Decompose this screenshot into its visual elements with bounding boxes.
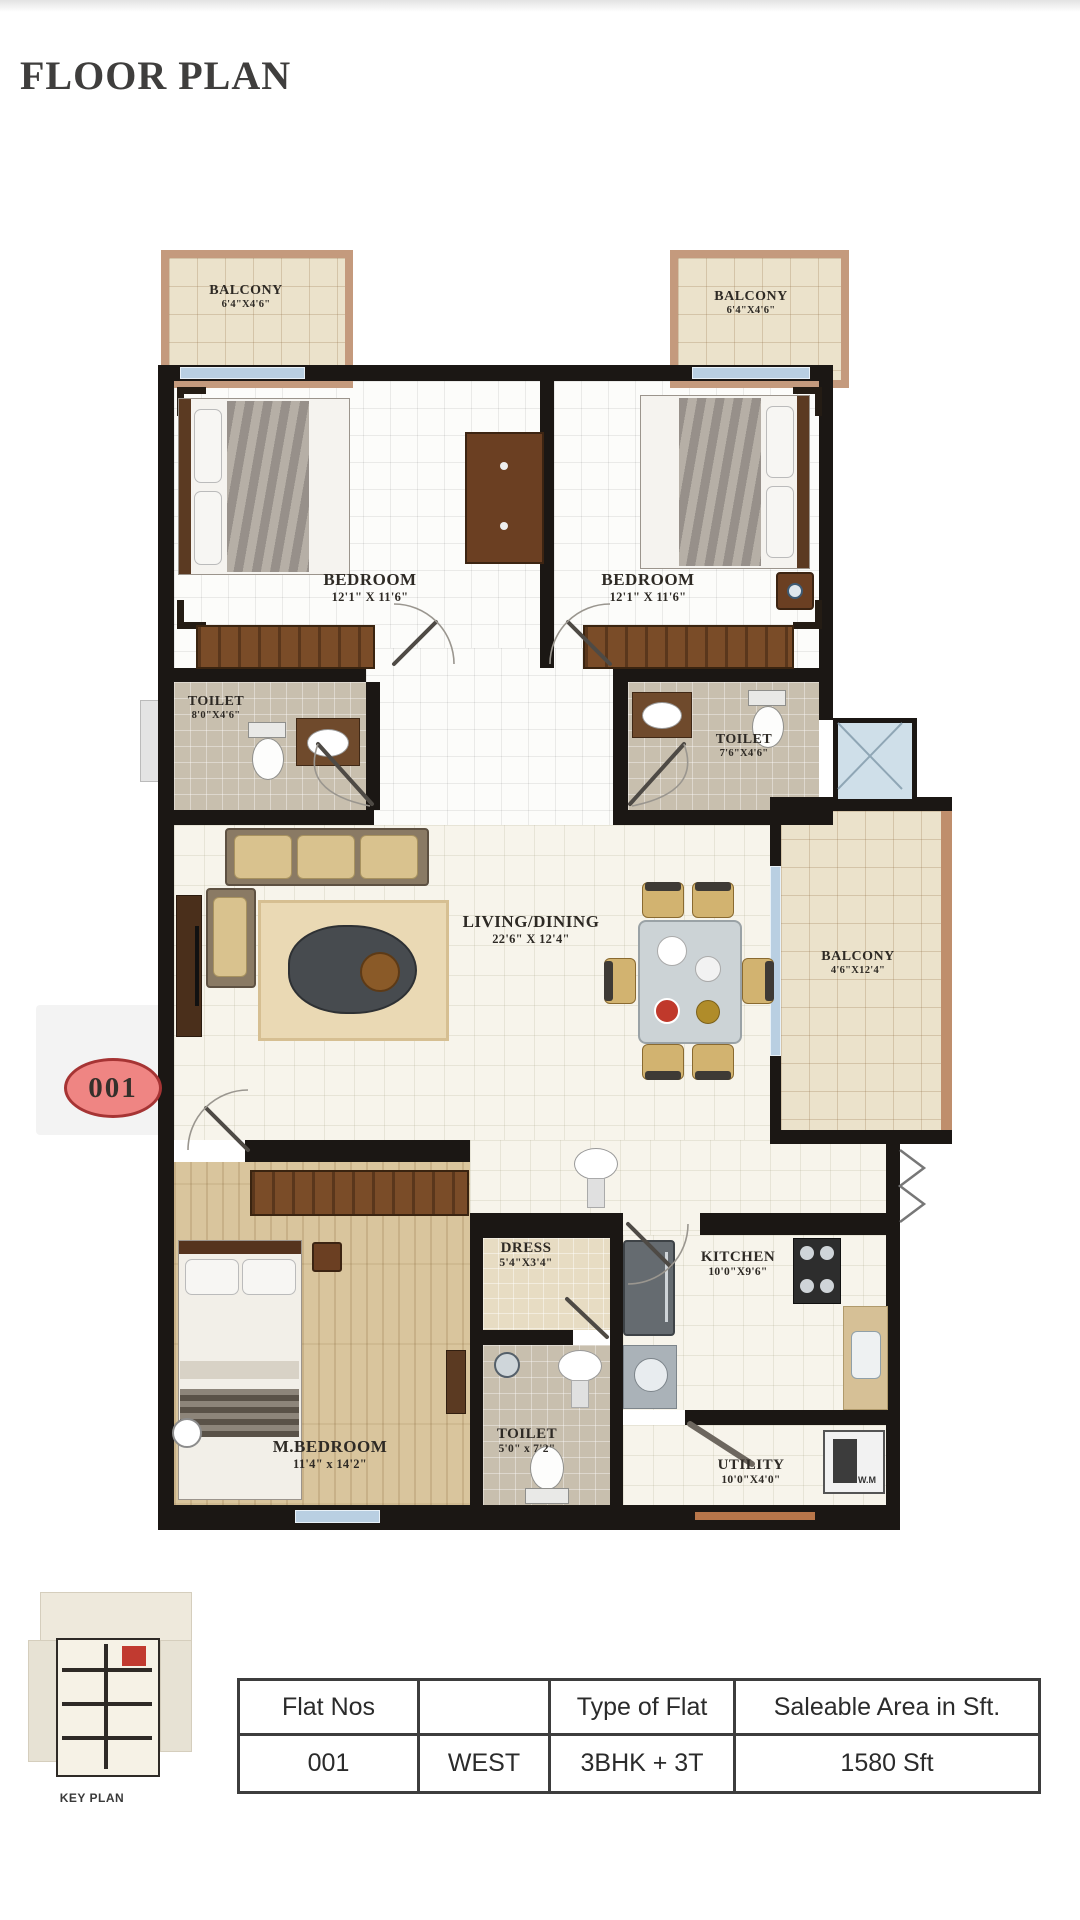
chair-icon [692, 882, 734, 918]
washing-machine-label: W.M [858, 1475, 876, 1485]
basin-bowl [642, 702, 682, 729]
room-dims: 6'4"X4'6" [209, 299, 283, 310]
room-label-dress: DRESS 5'4"X3'4" [499, 1240, 552, 1269]
room-label-utility: UTILITY 10'0"X4'0" [718, 1457, 785, 1486]
wall [700, 1213, 886, 1235]
wall [613, 668, 819, 682]
unit-number-badge: 001 [64, 1058, 162, 1118]
table-header-facing [420, 1681, 551, 1736]
hall-floor [366, 648, 613, 825]
balcony-floor [169, 258, 345, 380]
pillow [185, 1259, 239, 1295]
wall [158, 365, 174, 1530]
room-name: BALCONY [209, 283, 283, 299]
washbasin-icon [572, 1148, 618, 1208]
fridge-handle [665, 1252, 668, 1322]
knob [500, 522, 508, 530]
pillow [194, 491, 222, 565]
duvet [679, 398, 761, 566]
room-name: M.BEDROOM [273, 1437, 388, 1457]
wall [613, 810, 833, 825]
room-name: TOILET [497, 1426, 557, 1443]
table-header-type: Type of Flat [551, 1681, 736, 1736]
french-window-icon [900, 1150, 924, 1222]
basin-bowl [574, 1148, 618, 1180]
fridge-icon [623, 1240, 675, 1336]
dining-table-icon [638, 920, 742, 1044]
room-name: BALCONY [714, 289, 788, 305]
wall [470, 1213, 483, 1505]
room-label-balcony-top-left: BALCONY 6'4"X4'6" [209, 283, 283, 310]
bowl [360, 952, 400, 992]
toilet-bowl [252, 738, 284, 780]
basin-bowl [307, 729, 349, 757]
balcony-right-frame [941, 811, 952, 1130]
wall [610, 1238, 623, 1505]
wardrobe-icon [250, 1170, 469, 1216]
keyplan-wing [40, 1592, 192, 1642]
balcony-door-right [692, 367, 810, 379]
wall [158, 810, 374, 825]
kitchen-counter [843, 1306, 888, 1410]
bottom-window [295, 1510, 380, 1523]
room-label-bedroom-right: BEDROOM 12'1" X 11'6" [601, 570, 694, 605]
blanket-fold [180, 1361, 299, 1379]
floor-plan-page: FLOOR PLAN [0, 0, 1080, 1920]
room-name: TOILET [188, 694, 244, 710]
pillow [766, 486, 794, 558]
washbasin-icon [632, 692, 692, 738]
chair-icon [642, 882, 684, 918]
cushion [234, 835, 292, 879]
room-label-bedroom-left: BEDROOM 12'1" X 11'6" [323, 570, 416, 605]
toilet-window [140, 700, 160, 782]
room-name: KITCHEN [701, 1249, 775, 1266]
room-name: BALCONY [821, 949, 895, 965]
pillow [194, 409, 222, 483]
room-dims: 12'1" X 11'6" [323, 590, 416, 605]
room-dims: 5'0" x 7'2" [497, 1443, 557, 1455]
table-cell-type: 3BHK + 3T [551, 1736, 736, 1791]
table-cell-area: 1580 Sft [736, 1736, 1038, 1791]
pillow [766, 406, 794, 478]
cushion [213, 897, 247, 977]
basin-bowl [558, 1350, 602, 1382]
pillow [242, 1259, 296, 1295]
shower-icon [494, 1352, 520, 1378]
room-dims: 10'0"X4'0" [718, 1474, 785, 1486]
keyplan-wall [104, 1644, 108, 1769]
room-label-toilet-left: TOILET 8'0"X4'6" [188, 694, 244, 721]
chair-icon [742, 958, 774, 1004]
pedestal [571, 1380, 589, 1408]
toilet-icon [748, 690, 786, 706]
wall [483, 1330, 573, 1345]
lamp [787, 583, 803, 599]
dressing-mirror [446, 1350, 466, 1414]
plate-red [654, 998, 680, 1024]
headboard [179, 399, 191, 574]
wm-door [833, 1439, 857, 1483]
cushion [297, 835, 355, 879]
wall [366, 682, 380, 810]
wall [158, 668, 366, 682]
shaft-duct [833, 718, 917, 804]
stove-icon [793, 1238, 841, 1304]
bedside-table [312, 1242, 342, 1272]
room-dims: 5'4"X3'4" [499, 1257, 552, 1269]
wall [613, 682, 628, 810]
headboard [179, 1241, 301, 1254]
room-name: BEDROOM [323, 570, 416, 590]
table-header-flat-nos: Flat Nos [240, 1681, 420, 1736]
room-dims: 11'4" x 14'2" [273, 1457, 388, 1472]
room-dims: 6'4"X4'6" [714, 305, 788, 316]
keyplan-core [56, 1638, 160, 1777]
chair-icon [604, 958, 636, 1004]
wardrobe-icon [583, 625, 794, 669]
burner [800, 1279, 814, 1293]
chair-icon [692, 1044, 734, 1080]
room-dims: 8'0"X4'6" [188, 710, 244, 721]
key-plan-thumbnail: KEY PLAN [12, 1588, 182, 1813]
coffee-table-icon [288, 925, 417, 1014]
wall [483, 1213, 623, 1238]
duvet [227, 401, 309, 572]
balcony-floor [678, 258, 841, 380]
burner [820, 1246, 834, 1260]
wall-lamp [172, 1418, 202, 1448]
room-name: LIVING/DINING [463, 912, 600, 932]
room-name: TOILET [716, 732, 772, 748]
wall [245, 1140, 470, 1162]
room-label-toilet-right: TOILET 7'6"X4'6" [716, 732, 772, 759]
room-label-toilet-master: TOILET 5'0" x 7'2" [497, 1426, 557, 1455]
toilet-icon [525, 1488, 569, 1504]
table-cell-flat-no: 001 [240, 1736, 420, 1791]
wall [685, 1410, 886, 1425]
double-bed-icon [178, 398, 350, 575]
wardrobe-icon [196, 625, 375, 669]
chair-icon [642, 1044, 684, 1080]
room-dims: 22'6" X 12'4" [463, 932, 600, 947]
room-label-balcony-right: BALCONY 4'6"X12'4" [821, 949, 895, 976]
wall [819, 365, 833, 720]
wardrobe-icon [465, 432, 544, 564]
room-dims: 7'6"X4'6" [716, 748, 772, 759]
sink-icon [851, 1331, 881, 1379]
table-cell-facing: WEST [420, 1736, 551, 1791]
cushion [360, 835, 418, 879]
room-label-kitchen: KITCHEN 10'0"X9'6" [701, 1249, 775, 1278]
burner [800, 1246, 814, 1260]
washbasin-icon [296, 718, 360, 766]
room-name: DRESS [499, 1240, 552, 1257]
tv-unit-icon [176, 895, 202, 1037]
wall [770, 1056, 781, 1130]
armchair-icon [206, 888, 256, 988]
double-bed-icon [640, 395, 810, 569]
sofa-icon [225, 828, 429, 886]
pedestal [587, 1178, 605, 1208]
flat-info-table: Flat Nos Type of Flat Saleable Area in S… [237, 1678, 1041, 1794]
keyplan-wing [160, 1640, 192, 1752]
wall [770, 1130, 952, 1144]
utility-sill [695, 1512, 815, 1520]
room-dims: 10'0"X9'6" [701, 1266, 775, 1278]
sink-icon [634, 1358, 668, 1392]
sink-unit [623, 1345, 677, 1409]
nightstand [776, 572, 814, 610]
plate [657, 936, 687, 966]
room-dims: 4'6"X12'4" [821, 965, 895, 976]
tv-screen [195, 926, 199, 1006]
headboard [797, 396, 809, 568]
room-name: BEDROOM [601, 570, 694, 590]
plate-gold [696, 1000, 720, 1024]
table-header-area: Saleable Area in Sft. [736, 1681, 1038, 1736]
room-label-balcony-top-right: BALCONY 6'4"X4'6" [714, 289, 788, 316]
key-plan-caption: KEY PLAN [12, 1791, 172, 1805]
wall [886, 1144, 900, 1530]
room-label-master-bedroom: M.BEDROOM 11'4" x 14'2" [273, 1437, 388, 1472]
wall [770, 811, 781, 866]
burner [820, 1279, 834, 1293]
knob [500, 462, 508, 470]
plate [695, 956, 721, 982]
keyplan-highlight-unit [122, 1646, 146, 1666]
toilet-icon [248, 722, 286, 738]
room-name: UTILITY [718, 1457, 785, 1474]
washbasin-icon [556, 1350, 602, 1408]
room-label-living-dining: LIVING/DINING 22'6" X 12'4" [463, 912, 600, 947]
room-dims: 12'1" X 11'6" [601, 590, 694, 605]
balcony-door-left [180, 367, 305, 379]
